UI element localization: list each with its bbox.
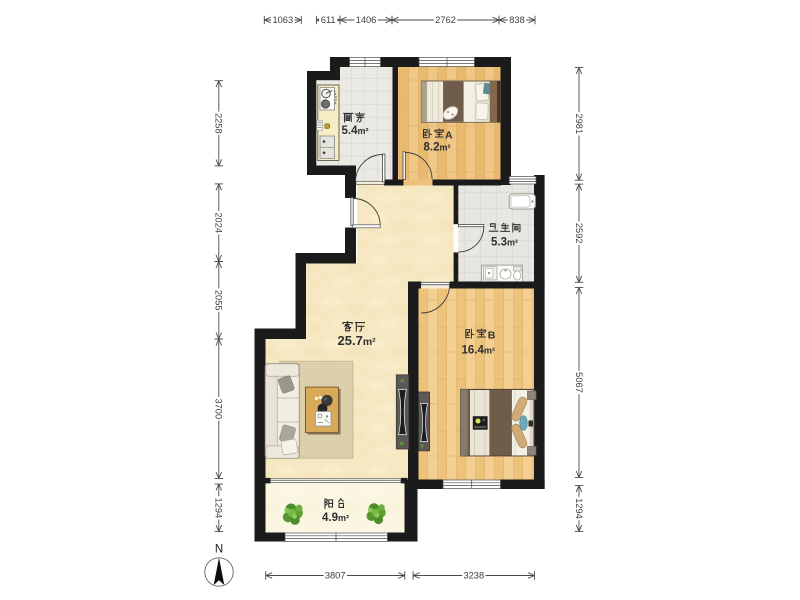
- svg-text:2592: 2592: [574, 223, 584, 244]
- svg-text:3807: 3807: [325, 571, 346, 581]
- svg-text:1294: 1294: [214, 498, 224, 519]
- svg-text:4.9m²: 4.9m²: [322, 512, 349, 524]
- svg-text:1406: 1406: [356, 15, 377, 25]
- svg-text:3700: 3700: [214, 398, 224, 419]
- svg-text:2981: 2981: [574, 113, 584, 134]
- svg-text:2024: 2024: [214, 212, 224, 233]
- svg-text:A: A: [445, 129, 453, 141]
- svg-text:1294: 1294: [574, 498, 584, 519]
- svg-text:2258: 2258: [214, 113, 224, 134]
- svg-text:25.7m²: 25.7m²: [338, 333, 377, 348]
- svg-text:2055: 2055: [214, 290, 224, 311]
- svg-text:N: N: [215, 544, 223, 556]
- svg-text:611: 611: [321, 15, 336, 25]
- svg-text:5.4m²: 5.4m²: [342, 125, 369, 137]
- svg-text:16.4m²: 16.4m²: [462, 345, 495, 357]
- svg-text:B: B: [488, 330, 496, 342]
- svg-text:3238: 3238: [463, 571, 484, 581]
- svg-text:1063: 1063: [272, 15, 293, 25]
- svg-text:5067: 5067: [574, 372, 584, 393]
- svg-text:2762: 2762: [435, 15, 456, 25]
- svg-text:8.2m²: 8.2m²: [424, 142, 451, 154]
- svg-text:5.3m²: 5.3m²: [491, 237, 518, 249]
- svg-text:838: 838: [509, 15, 525, 25]
